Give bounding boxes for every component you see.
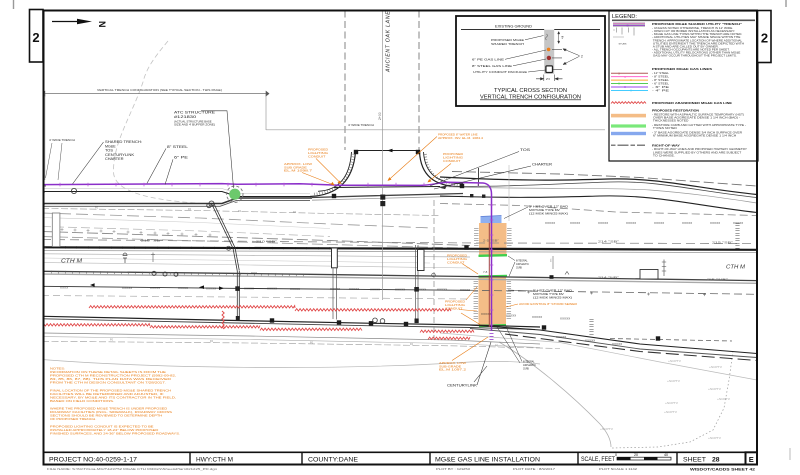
svg-text:+SCPTV: +SCPTV <box>717 397 730 401</box>
svg-text:6" PE GAS LINE: 6" PE GAS LINE <box>472 57 504 61</box>
svg-text:N: N <box>97 21 107 28</box>
svg-text:PROPOSED MG&E GAS LINES: PROPOSED MG&E GAS LINES <box>652 67 712 71</box>
svg-text:G: G <box>627 23 629 27</box>
svg-text:+SCPTV: +SCPTV <box>709 365 722 369</box>
svg-text:XXXXX: XXXXX <box>290 287 300 291</box>
svg-text:4' WIDE TRENCH: 4' WIDE TRENCH <box>49 138 75 142</box>
svg-text:+SCPTV: +SCPTV <box>667 379 680 383</box>
svg-text:28: 28 <box>712 457 720 464</box>
svg-text:2'±: 2'± <box>546 77 550 81</box>
svg-text:LEGEND:: LEGEND: <box>612 14 637 20</box>
svg-text:CTH M: CTH M <box>61 259 83 265</box>
svg-text:- 6" STEEL: - 6" STEEL <box>652 84 670 86</box>
svg-text:CHARTER: CHARTER <box>532 163 553 167</box>
svg-text:2-5 "SB": 2-5 "SB" <box>483 238 499 242</box>
svg-text:CENTURYLINK: CENTURYLINK <box>447 384 478 388</box>
svg-text:XXXXX: XXXXX <box>532 315 542 319</box>
svg-text:4' WIDE TRENCH: 4' WIDE TRENCH <box>348 123 374 127</box>
svg-text:+SCPTV: +SCPTV <box>708 387 721 391</box>
svg-text:UTILITY CONDUIT PACKAGE: UTILITY CONDUIT PACKAGE <box>473 70 527 74</box>
svg-text:PROPOSEDLIGHTINGCONDUIT: PROPOSEDLIGHTINGCONDUIT <box>443 152 463 163</box>
svg-text:8" STEEL: 8" STEEL <box>167 145 188 149</box>
svg-text:WISDOT/CADDS SHEET 42: WISDOT/CADDS SHEET 42 <box>690 468 755 472</box>
svg-text:XXXXX: XXXXX <box>598 221 608 225</box>
svg-text:5': 5' <box>562 36 565 40</box>
svg-text:PROPOSED MG&ESHARED TRENCH: PROPOSED MG&ESHARED TRENCH <box>491 38 524 46</box>
svg-text:G: G <box>630 89 632 93</box>
svg-text:XXXXX: XXXXX <box>710 221 720 225</box>
svg-text:XXXXX: XXXXX <box>654 221 664 225</box>
svg-text:PLOT BY : GN253: PLOT BY : GN253 <box>436 467 470 471</box>
svg-text:XXXXX: XXXXX <box>122 286 132 290</box>
svg-text:XXXXX: XXXXX <box>545 221 555 225</box>
svg-text:XXXXX: XXXXX <box>416 288 426 292</box>
svg-text:VERTICAL TRENCH CONFIGURATION: VERTICAL TRENCH CONFIGURATION <box>480 94 581 100</box>
svg-text:XXXXX: XXXXX <box>570 221 580 225</box>
svg-text:HWY:CTH M: HWY:CTH M <box>196 457 233 464</box>
svg-text:PROPOSED RESTORATION: PROPOSED RESTORATION <box>652 109 700 113</box>
svg-text:MG&E GAS LINE INSTALLATION: MG&E GAS LINE INSTALLATION <box>435 457 540 463</box>
svg-text:+SCPTV: +SCPTV <box>664 410 677 414</box>
svg-text:PROPOSED ABANDONED MG&E GAS LI: PROPOSED ABANDONED MG&E GAS LINE <box>652 101 732 105</box>
svg-text:PROPOSEDLIGHTINGCONDUIT: PROPOSEDLIGHTINGCONDUIT <box>445 300 465 311</box>
svg-text:8" STEEL GAS LINE: 8" STEEL GAS LINE <box>472 64 512 68</box>
svg-text:G: G <box>624 85 626 89</box>
svg-text:214 "SB": 214 "SB" <box>598 239 619 243</box>
svg-text:0: 0 <box>615 453 617 457</box>
svg-text:SCALE, FEET: SCALE, FEET <box>581 457 615 463</box>
svg-text:XXXXX: XXXXX <box>733 221 743 225</box>
svg-text:G: G <box>618 82 620 86</box>
svg-text:XXXXX: XXXXX <box>349 287 359 291</box>
svg-text:PROPOSEDLIGHTINGCONDUIT: PROPOSEDLIGHTINGCONDUIT <box>308 148 328 159</box>
svg-text:XXXX: XXXX <box>60 286 68 290</box>
svg-text:20: 20 <box>634 453 638 457</box>
svg-text:AVOID EXISTING 8" STORM SEWER: AVOID EXISTING 8" STORM SEWER <box>519 302 577 306</box>
svg-text:TYPICAL CROSS SECTION: TYPICAL CROSS SECTION <box>494 88 567 94</box>
svg-text:- UNLESS NOTED OTHERWISE, TREN: - UNLESS NOTED OTHERWISE, TRENCH IS 12' … <box>652 28 744 58</box>
svg-text:2I5 "NB": 2I5 "NB" <box>707 278 728 282</box>
svg-text:+SCPTV: +SCPTV <box>600 427 613 431</box>
svg-text:XXXXX: XXXXX <box>437 288 447 292</box>
svg-text:XXXXX: XXXXX <box>682 221 692 225</box>
svg-text:40: 40 <box>664 453 668 457</box>
svg-text:- 12" STEEL: - 12" STEEL <box>652 73 670 75</box>
svg-text:- 4" PE: - 4" PE <box>652 90 670 92</box>
svg-text:G: G <box>630 78 632 82</box>
svg-text:XXXXX: XXXXX <box>267 287 277 291</box>
svg-text:SHEET: SHEET <box>683 457 706 464</box>
svg-text:XXXXX: XXXXX <box>370 287 380 291</box>
svg-text:TOS: TOS <box>520 148 531 152</box>
svg-text:EXISTING GROUND: EXISTING GROUND <box>495 25 533 29</box>
svg-text:PROPOSED 8" WATER LINEAPPROX.: PROPOSED 8" WATER LINEAPPROX. INV. EL.M.… <box>438 134 484 140</box>
svg-text:2: 2 <box>761 31 768 46</box>
svg-text:- 6" PE: - 6" PE <box>652 87 670 89</box>
svg-text:E: E <box>749 455 754 464</box>
svg-text:2: 2 <box>581 55 583 59</box>
svg-text:XXXXX: XXXXX <box>585 338 595 342</box>
svg-text:XXXXX: XXXXX <box>612 342 622 346</box>
svg-text:PLOT SCALE 1 1142: PLOT SCALE 1 1142 <box>599 467 637 471</box>
svg-text:XXX: XXX <box>251 271 257 275</box>
svg-text:XXXXX: XXXXX <box>556 335 566 339</box>
svg-text:PROPOSEDLIGHTINGCONDUIT: PROPOSEDLIGHTINGCONDUIT <box>447 254 467 265</box>
svg-text:2: 2 <box>32 30 39 45</box>
svg-text:- 8" STEEL: - 8" STEEL <box>652 77 670 79</box>
svg-text:- 8" STEEL: - 8" STEEL <box>652 80 670 82</box>
svg-text:XXXXX: XXXXX <box>178 286 188 290</box>
svg-text:XXXXX: XXXXX <box>395 287 405 291</box>
svg-text:7-8: 7-8 <box>483 270 488 274</box>
svg-text:CTH M: CTH M <box>726 265 746 271</box>
svg-text:2+00: 2+00 <box>378 112 382 120</box>
svg-text:214 "NB": 214 "NB" <box>598 276 619 280</box>
svg-text:210 "SB": 210 "SB" <box>256 239 277 243</box>
svg-text:XXXXX: XXXXX <box>626 221 636 225</box>
svg-text:6" PE: 6" PE <box>174 156 189 160</box>
svg-text:XXXXX: XXXXX <box>206 286 216 290</box>
svg-text:(ACTUAL STRUCTURE BASESIZE AND: (ACTUAL STRUCTURE BASESIZE AND 4' BUFFER… <box>174 121 215 127</box>
svg-text:G: G <box>624 75 626 79</box>
svg-text:PROPOSED MG&E SHARED UTILITY ": PROPOSED MG&E SHARED UTILITY "TRENCH" <box>652 22 743 26</box>
svg-text:G: G <box>618 71 620 75</box>
svg-text:XXXXX: XXXXX <box>560 317 570 321</box>
svg-text:PLOT DATE : 8/9/2017: PLOT DATE : 8/9/2017 <box>513 467 555 471</box>
svg-text:RIGHT-OF-WAY: RIGHT-OF-WAY <box>652 143 681 147</box>
svg-text:+SCPTV: +SCPTV <box>668 359 681 363</box>
svg-text:STUBS: STUBS <box>619 44 628 46</box>
svg-text:+SCPTV: +SCPTV <box>665 401 678 405</box>
svg-text:XXXXX: XXXXX <box>460 288 470 292</box>
svg-text:FILE NAME: S:\51\TrGna-MGT\123: FILE NAME: S:\51\TrGna-MGT\123752 MGAE C… <box>47 467 217 471</box>
svg-text:+SCPTV: +SCPTV <box>708 436 721 440</box>
svg-text:210 "SB": 210 "SB" <box>141 238 162 242</box>
svg-text:PROJECT NO:40-0259-1-17: PROJECT NO:40-0259-1-17 <box>49 457 137 464</box>
svg-text:XXXXX: XXXXX <box>150 286 160 290</box>
svg-text:XXXXX: XXXXX <box>244 287 254 291</box>
svg-text:VERTICAL TRENCH CONFIGURATION: VERTICAL TRENCH CONFIGURATION (SEE TYPIC… <box>97 88 222 92</box>
svg-text:ANCIENT OAK LANE: ANCIENT OAK LANE <box>386 11 392 73</box>
svg-text:COUNTY:DANE: COUNTY:DANE <box>308 457 359 464</box>
svg-text:7'±: 7'± <box>444 176 448 180</box>
svg-text:XXXXX: XXXXX <box>506 314 516 318</box>
svg-text:215 "SB": 215 "SB" <box>712 240 733 244</box>
svg-text:XXXXX: XXXXX <box>330 287 340 291</box>
